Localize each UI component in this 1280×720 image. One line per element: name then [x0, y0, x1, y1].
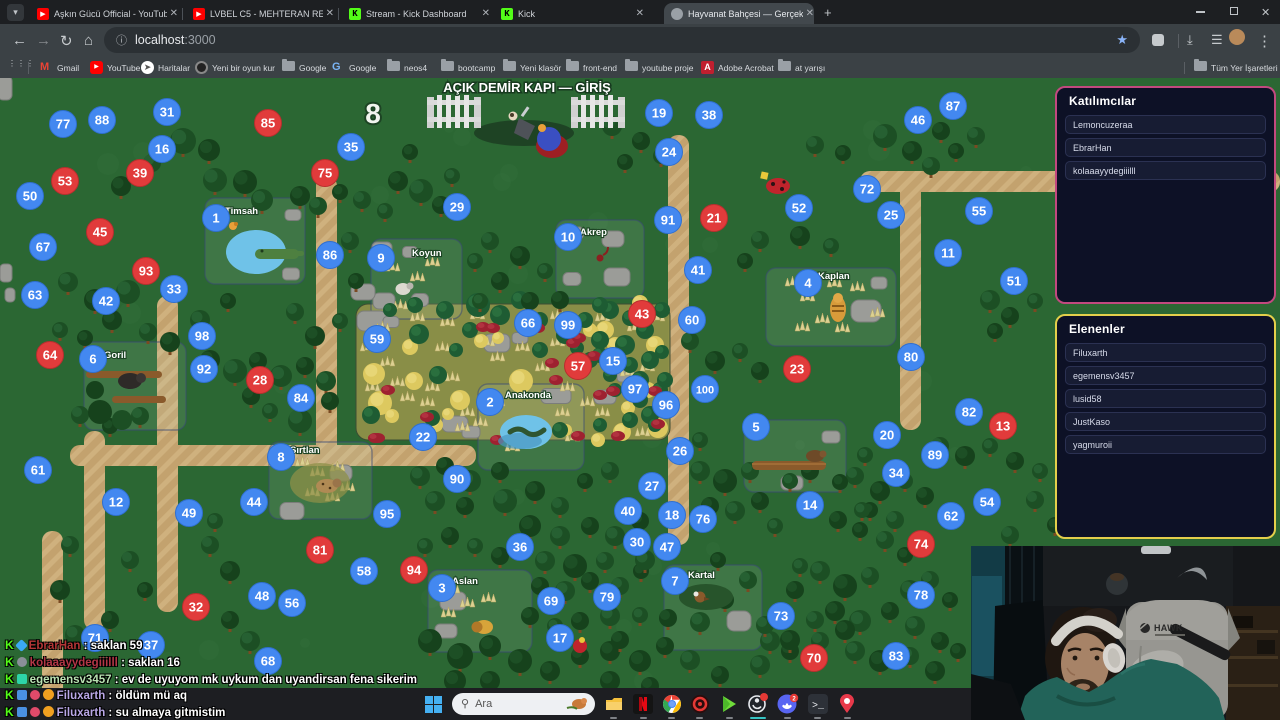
svg-text:96: 96 — [659, 398, 673, 413]
svg-text:4: 4 — [804, 276, 812, 291]
svg-text:83: 83 — [889, 649, 903, 664]
svg-text:35: 35 — [344, 140, 358, 155]
svg-text:69: 69 — [544, 594, 558, 609]
svg-text:15: 15 — [606, 354, 620, 369]
svg-text:80: 80 — [904, 350, 918, 365]
svg-text:55: 55 — [972, 204, 986, 219]
svg-text:79: 79 — [600, 590, 614, 605]
svg-text:39: 39 — [133, 166, 147, 181]
svg-text:89: 89 — [928, 448, 942, 463]
svg-text:23: 23 — [790, 362, 804, 377]
svg-text:42: 42 — [99, 294, 113, 309]
svg-text:99: 99 — [561, 318, 575, 333]
svg-text:40: 40 — [621, 504, 635, 519]
svg-text:28: 28 — [253, 373, 267, 388]
svg-text:48: 48 — [255, 589, 269, 604]
svg-text:13: 13 — [996, 419, 1010, 434]
svg-text:50: 50 — [23, 189, 37, 204]
svg-text:88: 88 — [95, 113, 109, 128]
svg-text:14: 14 — [803, 498, 818, 513]
svg-text:62: 62 — [944, 509, 958, 524]
svg-text:82: 82 — [962, 405, 976, 420]
svg-text:51: 51 — [1007, 274, 1021, 289]
svg-text:1: 1 — [212, 211, 219, 226]
svg-text:38: 38 — [702, 108, 716, 123]
svg-text:91: 91 — [661, 213, 675, 228]
svg-text:73: 73 — [774, 609, 788, 624]
svg-text:Koyun: Koyun — [412, 248, 442, 259]
svg-text:26: 26 — [673, 444, 687, 459]
svg-text:66: 66 — [521, 316, 535, 331]
svg-text:Kaplan: Kaplan — [818, 271, 850, 282]
svg-text:41: 41 — [691, 263, 705, 278]
svg-text:24: 24 — [662, 145, 677, 160]
svg-text:76: 76 — [696, 512, 710, 527]
svg-text:98: 98 — [195, 329, 209, 344]
svg-text:78: 78 — [914, 588, 928, 603]
svg-text:64: 64 — [43, 348, 58, 363]
svg-text:21: 21 — [707, 211, 721, 226]
svg-text:44: 44 — [247, 495, 262, 510]
svg-text:95: 95 — [380, 507, 394, 522]
svg-text:87: 87 — [946, 99, 960, 114]
svg-text:31: 31 — [160, 105, 174, 120]
svg-text:Goril: Goril — [104, 350, 126, 361]
svg-text:8: 8 — [277, 450, 284, 465]
svg-text:100: 100 — [696, 385, 714, 397]
svg-text:37: 37 — [144, 638, 158, 653]
svg-text:18: 18 — [665, 508, 679, 523]
svg-text:17: 17 — [553, 631, 567, 646]
svg-text:33: 33 — [167, 282, 181, 297]
svg-text:22: 22 — [416, 430, 430, 445]
svg-text:57: 57 — [571, 359, 585, 374]
svg-text:30: 30 — [630, 535, 644, 550]
svg-text:77: 77 — [56, 117, 70, 132]
svg-text:12: 12 — [109, 495, 123, 510]
svg-text:43: 43 — [635, 307, 649, 322]
svg-text:61: 61 — [31, 463, 45, 478]
svg-text:90: 90 — [450, 472, 464, 487]
svg-text:68: 68 — [261, 654, 275, 669]
svg-text:Akrep: Akrep — [580, 227, 607, 238]
svg-text:72: 72 — [860, 182, 874, 197]
svg-text:19: 19 — [652, 106, 666, 121]
svg-text:93: 93 — [139, 264, 153, 279]
svg-text:10: 10 — [561, 230, 575, 245]
svg-text:Kartal: Kartal — [688, 570, 715, 581]
svg-text:60: 60 — [685, 313, 699, 328]
svg-text:2: 2 — [486, 395, 493, 410]
svg-text:Aslan: Aslan — [452, 576, 478, 587]
svg-text:46: 46 — [911, 113, 925, 128]
svg-text:27: 27 — [645, 479, 659, 494]
svg-text:52: 52 — [792, 201, 806, 216]
svg-text:AÇIK DEMİR KAPI — GİRİŞ: AÇIK DEMİR KAPI — GİRİŞ — [443, 80, 611, 95]
svg-text:32: 32 — [189, 600, 203, 615]
svg-text:59: 59 — [370, 332, 384, 347]
svg-text:25: 25 — [884, 208, 898, 223]
svg-text:75: 75 — [318, 166, 332, 181]
svg-text:7: 7 — [671, 574, 678, 589]
svg-text:54: 54 — [980, 495, 995, 510]
svg-text:29: 29 — [450, 200, 464, 215]
svg-text:70: 70 — [807, 651, 821, 666]
svg-text:45: 45 — [93, 225, 107, 240]
svg-text:8: 8 — [365, 98, 381, 129]
svg-text:92: 92 — [197, 362, 211, 377]
svg-text:6: 6 — [89, 352, 96, 367]
svg-text:9: 9 — [377, 251, 384, 266]
svg-text:94: 94 — [407, 563, 422, 578]
svg-text:74: 74 — [914, 537, 929, 552]
svg-text:11: 11 — [941, 246, 955, 261]
svg-text:16: 16 — [155, 142, 169, 157]
svg-text:56: 56 — [285, 596, 299, 611]
svg-text:36: 36 — [513, 540, 527, 555]
svg-text:63: 63 — [28, 288, 42, 303]
svg-text:67: 67 — [36, 240, 50, 255]
svg-text:3: 3 — [438, 581, 445, 596]
svg-text:58: 58 — [357, 564, 371, 579]
svg-text:Timsah: Timsah — [225, 206, 258, 217]
svg-text:97: 97 — [628, 382, 642, 397]
svg-text:20: 20 — [880, 428, 894, 443]
svg-text:Anakonda: Anakonda — [505, 390, 552, 401]
svg-text:86: 86 — [323, 248, 337, 263]
svg-text:84: 84 — [294, 391, 309, 406]
svg-text:81: 81 — [313, 543, 327, 558]
svg-text:49: 49 — [182, 506, 196, 521]
svg-text:>_: >_ — [812, 701, 825, 712]
svg-text:53: 53 — [58, 174, 72, 189]
svg-text:85: 85 — [261, 116, 275, 131]
svg-text:34: 34 — [889, 466, 904, 481]
svg-text:47: 47 — [660, 540, 674, 555]
svg-text:5: 5 — [752, 420, 759, 435]
